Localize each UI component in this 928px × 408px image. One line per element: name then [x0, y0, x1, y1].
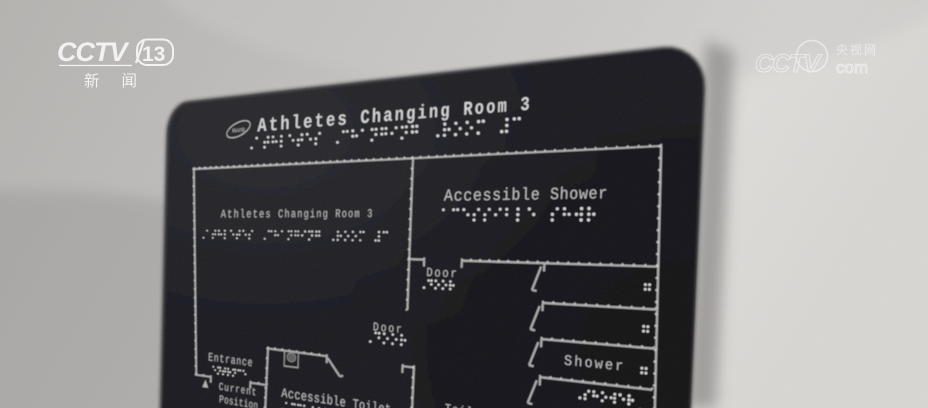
svg-text:新闻: 新闻: [84, 72, 159, 90]
svg-text:央视网: 央视网: [836, 42, 878, 57]
svg-text:com: com: [836, 58, 868, 77]
svg-text:CCTV: CCTV: [57, 37, 129, 67]
svg-text:CCTV: CCTV: [755, 50, 822, 78]
svg-text:13: 13: [142, 43, 165, 66]
